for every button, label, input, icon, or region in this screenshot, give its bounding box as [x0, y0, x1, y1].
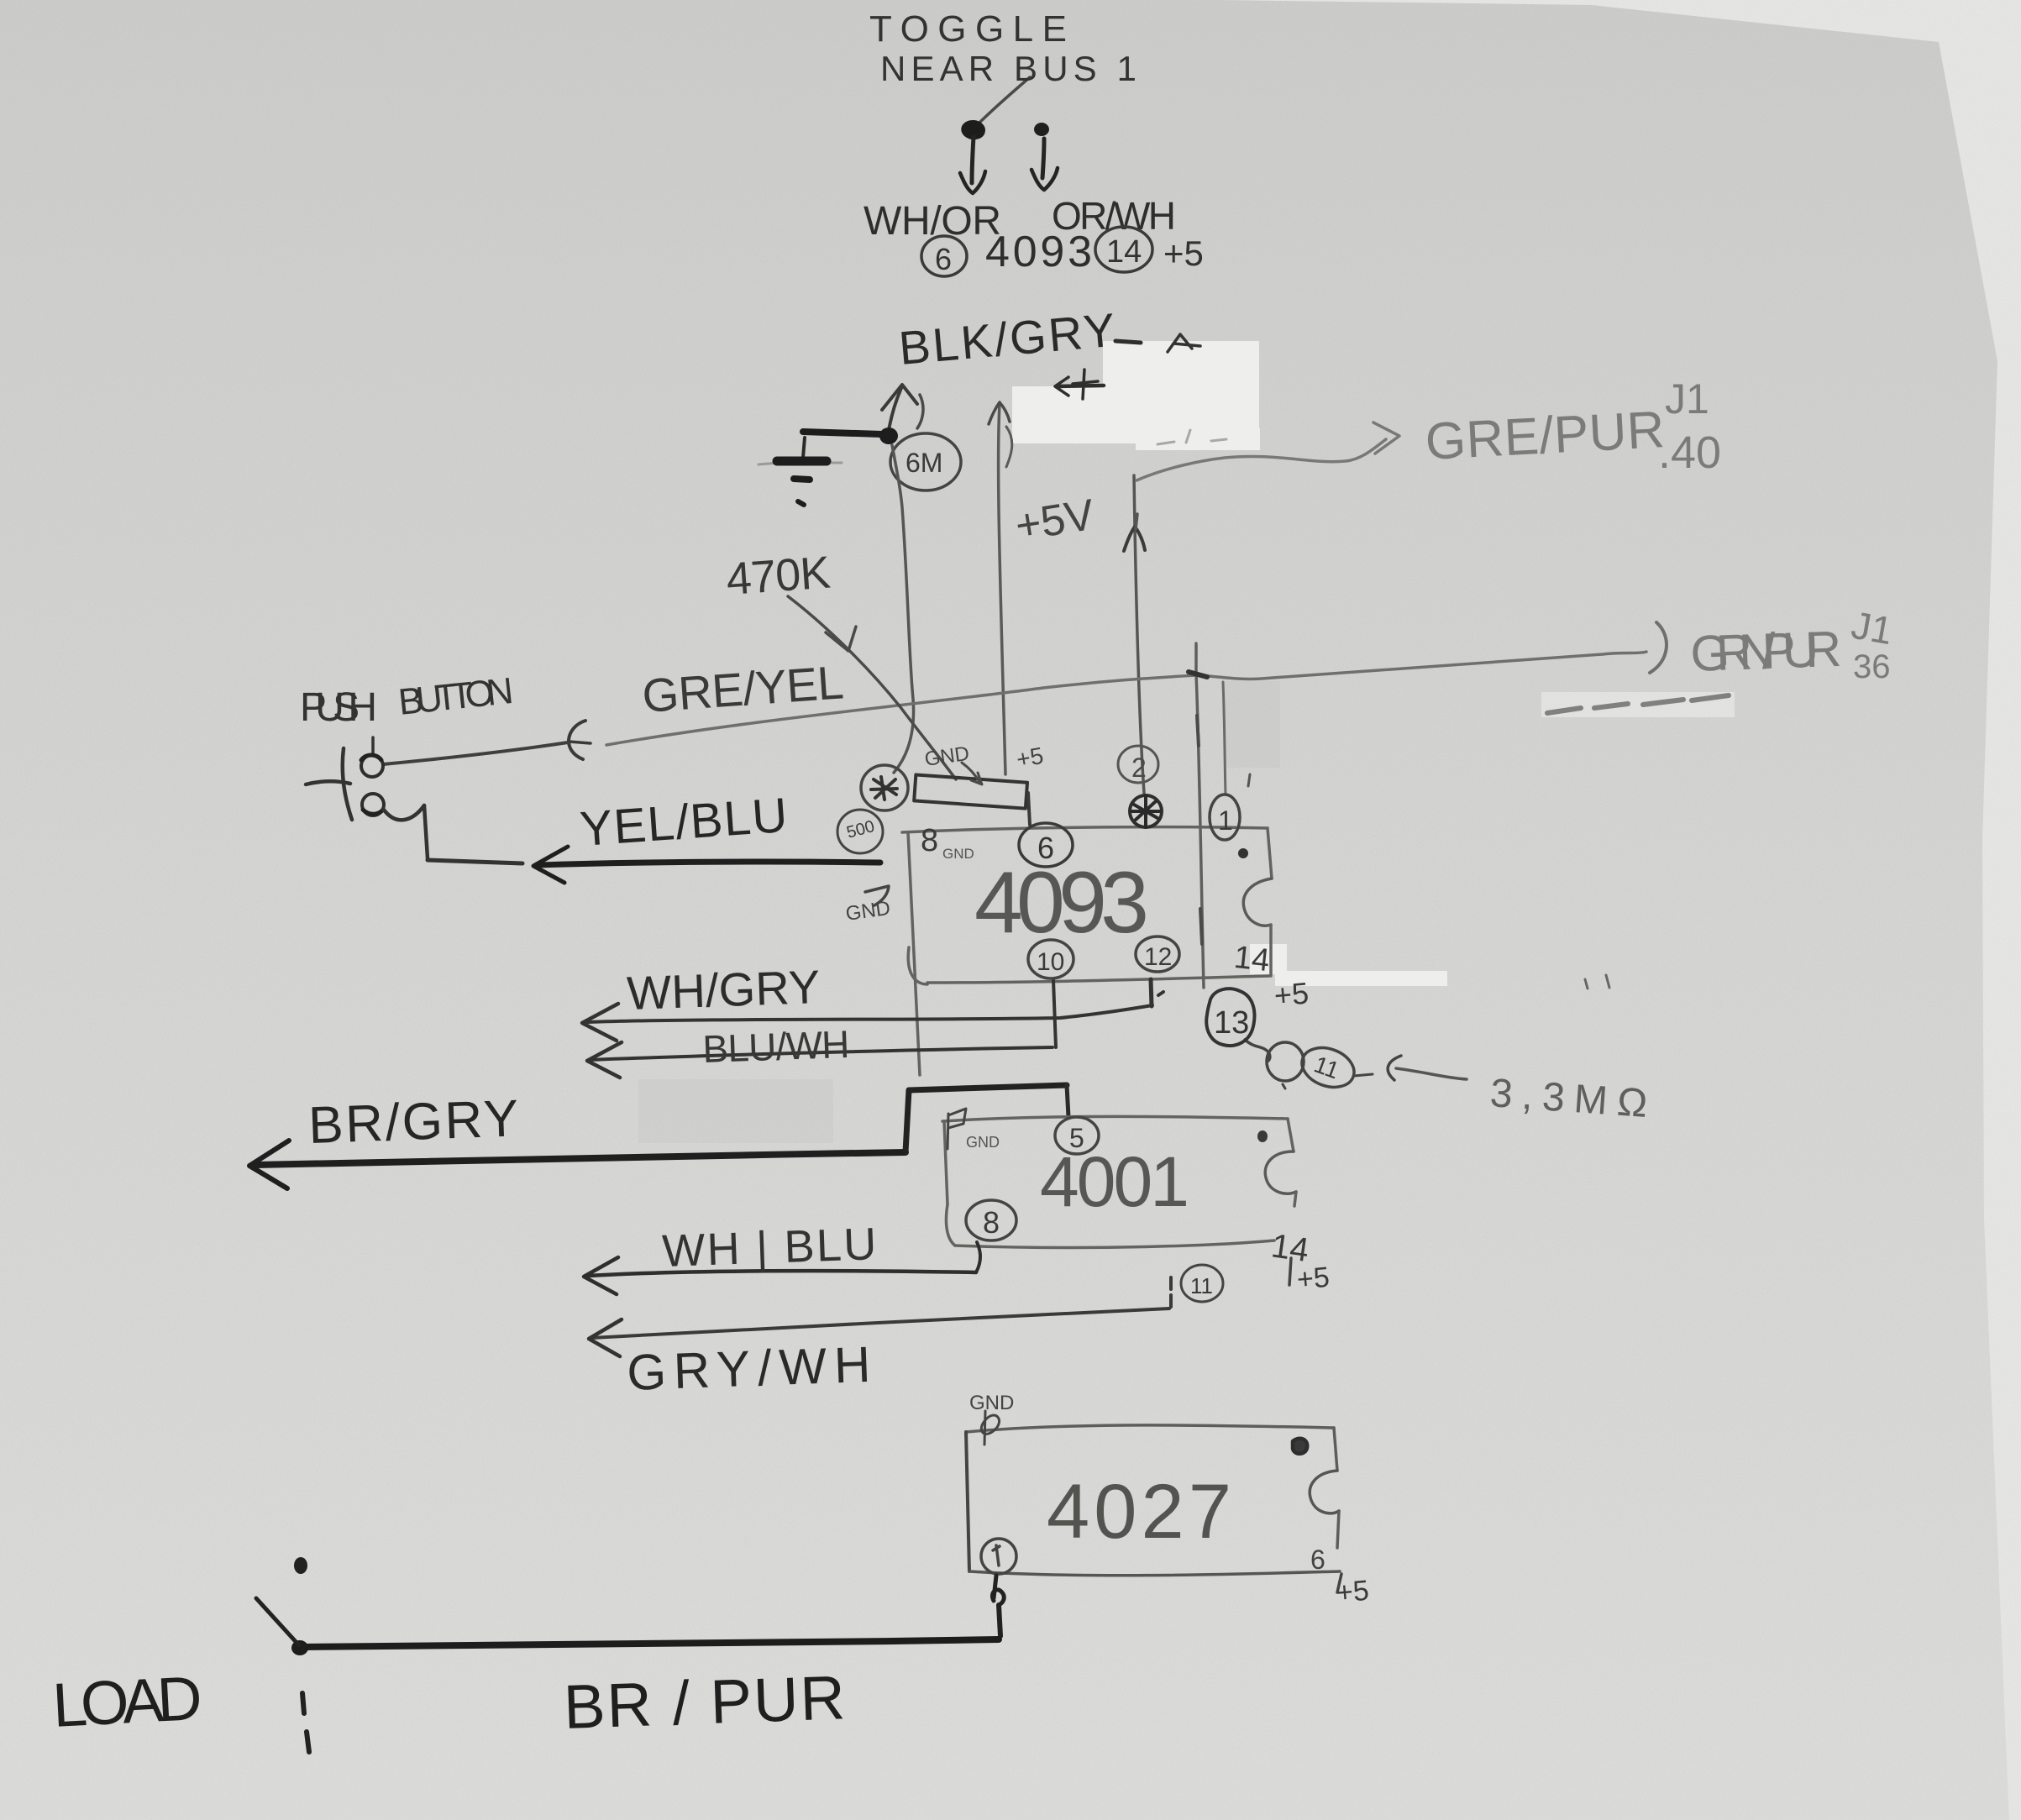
svg-text:+5: +5 [1273, 976, 1310, 1013]
svg-text:+5: +5 [1335, 1575, 1370, 1609]
svg-text:GND: GND [969, 1392, 1014, 1414]
svg-text:GND: GND [942, 846, 974, 862]
svg-text:J1: J1 [1665, 375, 1709, 422]
svg-text:5: 5 [1069, 1123, 1084, 1153]
svg-text:GND: GND [966, 1134, 1000, 1151]
svg-text:36: 36 [1853, 648, 1891, 685]
svg-text:10: 10 [1037, 948, 1064, 976]
svg-text:BLU/WH: BLU/WH [702, 1022, 851, 1071]
svg-text:2: 2 [1131, 753, 1147, 783]
svg-text:11: 11 [1190, 1273, 1213, 1298]
svg-text:6M: 6M [906, 448, 942, 478]
svg-text:WH/OR: WH/OR [864, 199, 1001, 244]
svg-text:6: 6 [1037, 831, 1054, 865]
svg-text:.40: .40 [1658, 427, 1721, 478]
svg-text:14: 14 [1232, 940, 1271, 978]
svg-text:6: 6 [935, 242, 952, 276]
svg-text:4001: 4001 [1040, 1142, 1189, 1221]
svg-text:14: 14 [1106, 234, 1142, 270]
svg-text:GRN/PUR: GRN/PUR [1689, 621, 1842, 682]
svg-text:GRY/WH: GRY/WH [626, 1336, 871, 1401]
svg-text:1: 1 [1218, 805, 1233, 836]
svg-text:PUSH: PUSH [300, 685, 377, 730]
svg-text:8: 8 [983, 1205, 1000, 1240]
svg-text:13: 13 [1214, 1005, 1249, 1041]
svg-text:4093: 4093 [974, 854, 1149, 952]
svg-text:6: 6 [1310, 1545, 1325, 1575]
svg-text:12: 12 [1144, 943, 1172, 971]
svg-text:LOAD: LOAD [50, 1663, 203, 1740]
svg-text:+5: +5 [1295, 1261, 1331, 1296]
svg-text:470K: 470K [725, 547, 832, 605]
svg-text:BR/GRY: BR/GRY [307, 1089, 519, 1155]
svg-text:8: 8 [921, 823, 938, 858]
svg-text:+5: +5 [1015, 742, 1046, 773]
svg-text:WH/GRY: WH/GRY [626, 960, 821, 1020]
svg-text:J1: J1 [1848, 603, 1896, 653]
svg-text:+5: +5 [1163, 233, 1204, 273]
